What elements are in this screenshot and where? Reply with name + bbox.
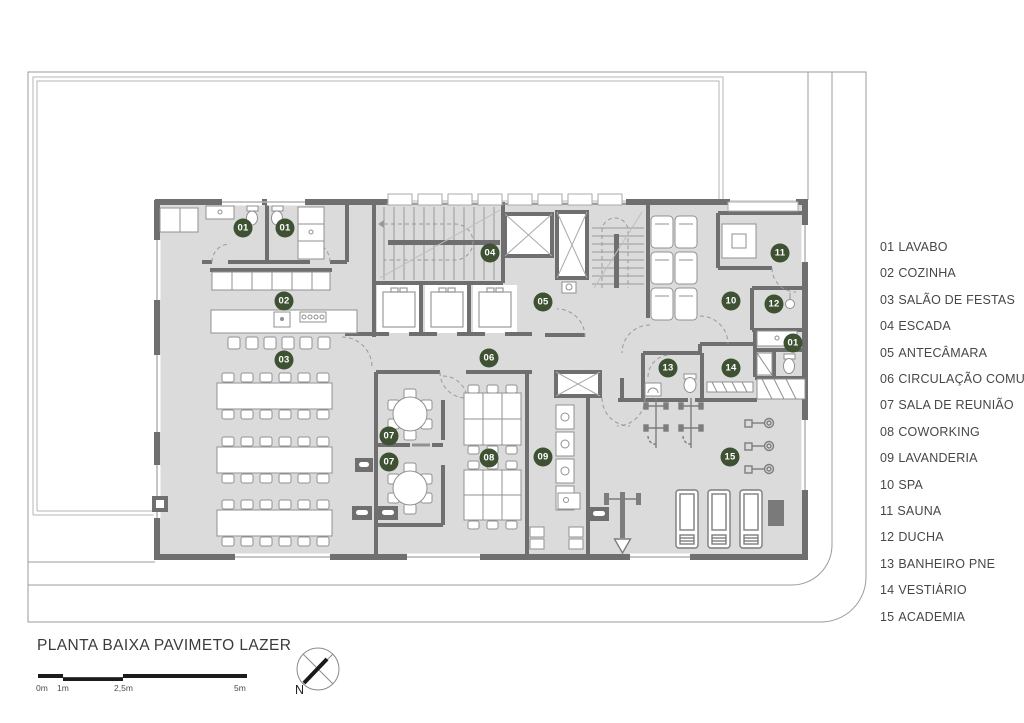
legend-item: 12DUCHA <box>880 524 1024 550</box>
sauna-bench <box>722 224 756 258</box>
legend-item: 01LAVABO <box>880 234 1024 260</box>
legend-item-number: 03 <box>880 293 894 307</box>
room-badge-07: 07 <box>380 453 399 472</box>
legend-item-number: 10 <box>880 478 894 492</box>
legend-item-number: 04 <box>880 319 894 333</box>
legend-item-number: 15 <box>880 610 894 624</box>
room-badge-14: 14 <box>722 359 741 378</box>
scale-label-5m: 5m <box>234 683 246 693</box>
floor-plan-drawing <box>0 0 1024 723</box>
floor-plan-sheet: 010102030405060707080910111201131415 01L… <box>0 0 1024 723</box>
legend-item: 05ANTECÂMARA <box>880 340 1024 366</box>
legend-item-label: SAUNA <box>897 504 941 518</box>
legend: 01LAVABO 02COZINHA 03SALÃO DE FESTAS 04E… <box>880 234 1024 630</box>
scale-label-1m: 1m <box>57 683 69 693</box>
legend-item-number: 14 <box>880 583 894 597</box>
legend-item: 02COZINHA <box>880 260 1024 286</box>
plan-title: PLANTA BAIXA PAVIMETO LAZER <box>37 637 291 655</box>
room-badge-07: 07 <box>380 427 399 446</box>
banquet-tables <box>217 373 332 546</box>
scale-label-2-5m: 2,5m <box>114 683 133 693</box>
legend-item-number: 13 <box>880 557 894 571</box>
legend-item: 06CIRCULAÇÃO COMUM <box>880 366 1024 392</box>
legend-item-number: 06 <box>880 372 894 386</box>
legend-item-label: SALÃO DE FESTAS <box>898 293 1015 307</box>
legend-item-label: DUCHA <box>898 530 943 544</box>
room-badge-10: 10 <box>722 292 741 311</box>
legend-item-number: 05 <box>880 346 894 360</box>
legend-item-number: 11 <box>880 504 893 518</box>
room-badge-02: 02 <box>275 292 294 311</box>
legend-item-label: COWORKING <box>898 425 980 439</box>
legend-item-number: 02 <box>880 266 894 280</box>
legend-item-number: 08 <box>880 425 894 439</box>
legend-item: 11SAUNA <box>880 498 1024 524</box>
room-badge-01: 01 <box>784 334 803 353</box>
room-badge-05: 05 <box>534 293 553 312</box>
legend-item-label: ANTECÂMARA <box>898 346 987 360</box>
room-badge-06: 06 <box>480 349 499 368</box>
legend-item-number: 01 <box>880 240 894 254</box>
legend-item-label: SALA DE REUNIÃO <box>898 398 1014 412</box>
legend-item-label: ACADEMIA <box>898 610 965 624</box>
legend-item: 07SALA DE REUNIÃO <box>880 392 1024 418</box>
room-badge-08: 08 <box>480 449 499 468</box>
legend-item: 04ESCADA <box>880 313 1024 339</box>
room-badge-12: 12 <box>765 295 784 314</box>
legend-item: 09LAVANDERIA <box>880 445 1024 471</box>
room-badge-03: 03 <box>275 351 294 370</box>
room-badge-04: 04 <box>481 244 500 263</box>
room-badge-13: 13 <box>659 359 678 378</box>
legend-item: 03SALÃO DE FESTAS <box>880 287 1024 313</box>
legend-item-label: LAVANDERIA <box>898 451 977 465</box>
legend-item-label: LAVABO <box>898 240 947 254</box>
scale-bar: 0m 1m 2,5m 5m <box>38 668 247 698</box>
room-badge-15: 15 <box>721 448 740 467</box>
room-badge-09: 09 <box>534 448 553 467</box>
room-badge-11: 11 <box>771 244 790 263</box>
legend-item: 14VESTIÁRIO <box>880 577 1024 603</box>
north-label: N <box>295 683 304 697</box>
room-badge-01: 01 <box>234 219 253 238</box>
scale-bar-segment <box>63 678 123 682</box>
scale-bar-segment <box>123 674 247 678</box>
scale-label-0m: 0m <box>36 683 48 693</box>
legend-item: 08COWORKING <box>880 419 1024 445</box>
scale-bar-segment <box>38 674 63 678</box>
elevators <box>377 285 517 333</box>
legend-item: 15ACADEMIA <box>880 604 1024 630</box>
legend-item-number: 07 <box>880 398 894 412</box>
legend-item: 10SPA <box>880 472 1024 498</box>
legend-item-label: ESCADA <box>898 319 951 333</box>
legend-item-label: BANHEIRO PNE <box>898 557 995 571</box>
legend-item-number: 12 <box>880 530 894 544</box>
legend-item-label: COZINHA <box>898 266 956 280</box>
legend-item: 13BANHEIRO PNE <box>880 551 1024 577</box>
legend-item-label: VESTIÁRIO <box>898 583 966 597</box>
legend-item-label: SPA <box>898 478 923 492</box>
legend-item-label: CIRCULAÇÃO COMUM <box>898 372 1024 386</box>
room-badge-01: 01 <box>276 219 295 238</box>
legend-item-number: 09 <box>880 451 894 465</box>
